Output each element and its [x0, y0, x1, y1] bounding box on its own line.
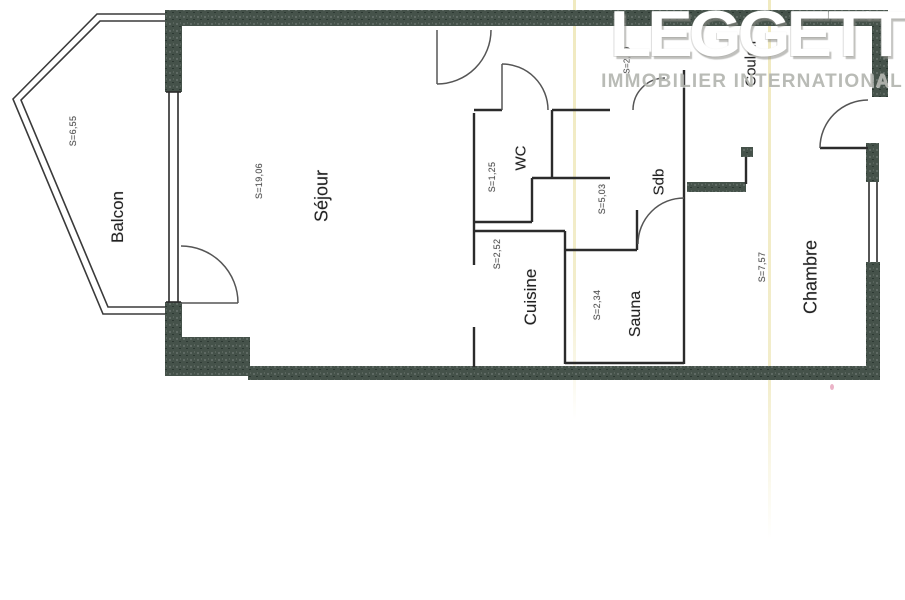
room-label-sauna: Sauna	[627, 291, 645, 337]
room-area-wc: S=1,25	[487, 162, 497, 193]
room-label-chambre: Chambre	[801, 240, 822, 314]
room-area-sauna: S=2,34	[592, 290, 602, 321]
room-area-cuisine: S=2,52	[492, 239, 502, 270]
room-label-sejour: Séjour	[312, 170, 333, 222]
leggett-logo: LEGGETT IMMOBILIER INTERNATIONAL	[601, 2, 903, 91]
leggett-logo-wordmark: LEGGETT	[601, 2, 903, 67]
room-label-balcon: Balcon	[108, 191, 128, 243]
room-label-cuisine: Cuisine	[521, 269, 541, 326]
floor-plan-scan: Balcon Séjour WC Sdb Cuisine Sauna Chamb…	[0, 0, 905, 600]
scan-ink-speck	[830, 384, 834, 390]
room-area-sejour: S=19,06	[254, 163, 264, 199]
room-area-sdb: S=5,03	[597, 184, 607, 215]
room-area-balcon: S=6,55	[68, 116, 78, 147]
room-label-wc: WC	[513, 146, 530, 171]
leggett-logo-tagline: IMMOBILIER INTERNATIONAL	[601, 72, 903, 91]
room-label-sdb: Sdb	[651, 169, 668, 196]
balcony-outline	[13, 14, 168, 314]
room-area-chambre: S=7,57	[757, 252, 767, 283]
